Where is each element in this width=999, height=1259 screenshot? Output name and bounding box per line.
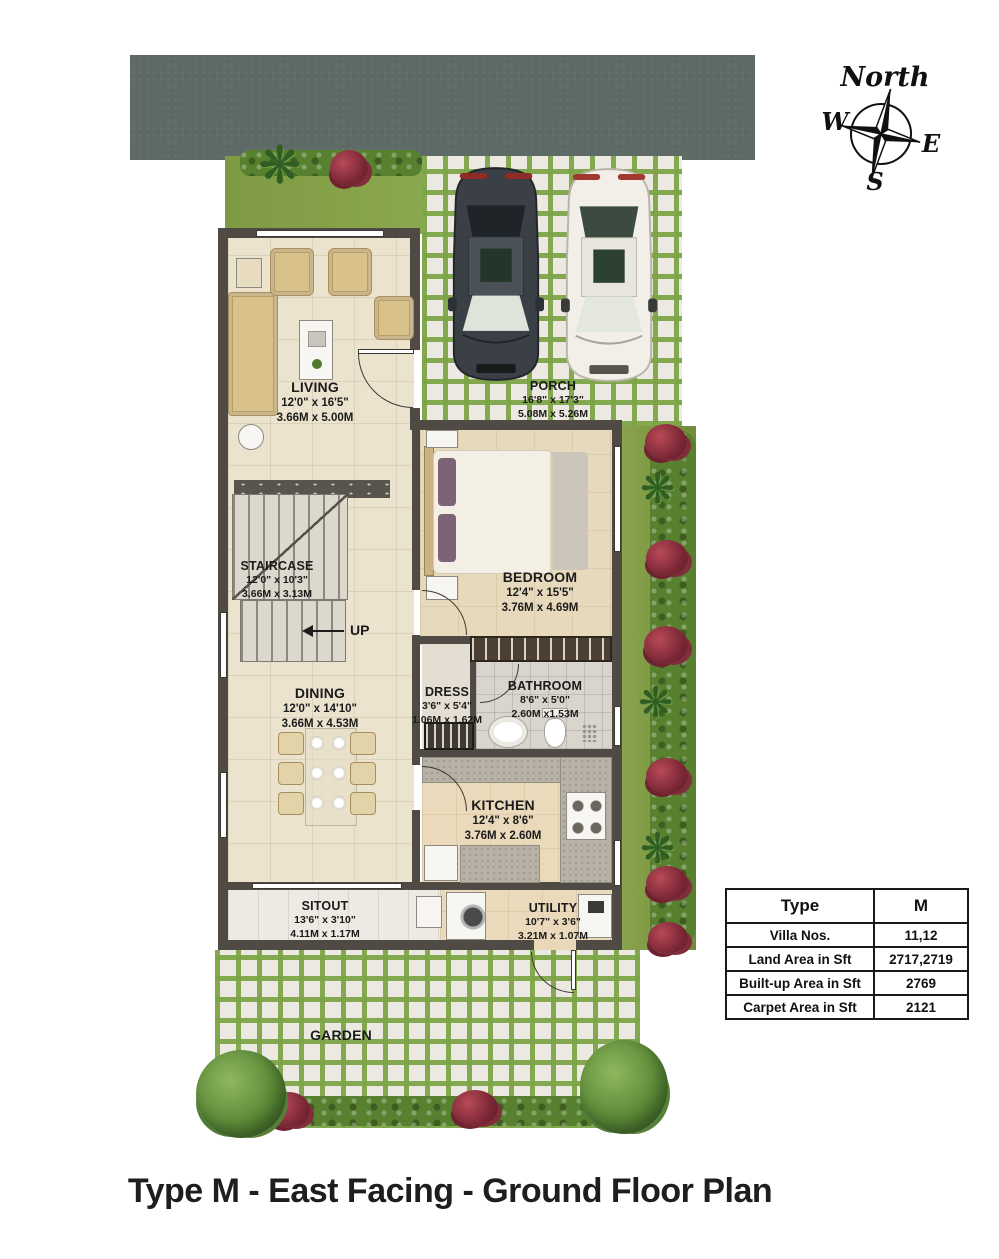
palm-icon: ❋ [638, 682, 673, 724]
door-mat [416, 896, 442, 928]
room-name: UTILITY [490, 900, 616, 916]
wall [412, 430, 420, 590]
room-name: STAIRCASE [222, 558, 332, 574]
spec-row-value: 2121 [874, 995, 968, 1019]
dining-chair [350, 762, 376, 785]
compass-north-label: North [839, 62, 929, 93]
room-name: GARDEN [281, 1026, 401, 1044]
window [252, 883, 402, 889]
up-arrow-icon [312, 630, 344, 632]
room-label-kitchen: KITCHEN 12'4" x 8'6" 3.76M x 2.60M [433, 796, 573, 844]
compass-west-label: W [822, 107, 851, 136]
nightstand [426, 430, 458, 448]
dining-chair [350, 732, 376, 755]
plate-icon [310, 736, 324, 750]
tree-icon [580, 1040, 668, 1134]
plant-icon [312, 359, 322, 369]
compass-east-label: E [921, 129, 941, 158]
room-dim-ft: 12'0" x 16'5" [245, 396, 385, 411]
room-label-bedroom: BEDROOM 12'4" x 15'5" 3.76M x 4.69M [470, 568, 610, 616]
flower-bush-icon [330, 150, 368, 186]
room-dim-m: 3.66M x 5.00M [245, 411, 385, 426]
room-dim-ft: 3'6" x 5'4" [404, 700, 490, 714]
spec-table-row: Built-up Area in Sft 2769 [726, 971, 968, 995]
room-dim-ft: 8'6" x 5'0" [483, 694, 607, 708]
flower-bush-icon [646, 866, 688, 900]
pillow [438, 458, 456, 506]
coffee-table [299, 320, 333, 380]
wall [412, 749, 622, 757]
up-label: UP [350, 622, 369, 638]
flower-bush-icon [648, 922, 688, 954]
room-name: PORCH [483, 378, 623, 394]
room-dim-m: 4.11M x 1.17M [255, 928, 395, 942]
plate-icon [332, 766, 346, 780]
room-label-sitout: SITOUT 13'6" x 3'10" 4.11M x 1.17M [255, 898, 395, 942]
room-dim-ft: 10'7" x 3'6" [490, 916, 616, 930]
window [614, 446, 621, 552]
spec-row-value: 2717,2719 [874, 947, 968, 971]
flower-bush-icon [644, 626, 688, 664]
window [220, 612, 227, 678]
spec-header-value: M [874, 889, 968, 923]
room-dim-m: 2.60M x1.53M [483, 708, 607, 722]
spec-row-value: 11,12 [874, 923, 968, 947]
room-dim-ft: 12'4" x 8'6" [433, 814, 573, 829]
palm-icon: ❋ [640, 468, 675, 510]
room-dim-m: 3.66M x 3.13M [222, 588, 332, 602]
room-dim-ft: 12'0" x 10'3" [222, 574, 332, 588]
room-label-bathroom: BATHROOM 8'6" x 5'0" 2.60M x1.53M [483, 678, 607, 722]
car-dark-icon [447, 164, 545, 384]
dining-chair [350, 792, 376, 815]
spec-row-label: Villa Nos. [726, 923, 874, 947]
spec-table-row: Carpet Area in Sft 2121 [726, 995, 968, 1019]
up-arrow-icon [302, 625, 313, 637]
plate-icon [310, 796, 324, 810]
room-label-dining: DINING 12'0" x 14'10" 3.66M x 4.53M [250, 684, 390, 732]
armchair [270, 248, 314, 296]
room-dim-m: 3.76M x 2.60M [433, 829, 573, 844]
palm-icon: ❋ [258, 140, 302, 192]
palm-icon: ❋ [640, 828, 675, 870]
dining-chair [278, 732, 304, 755]
spec-header-type: Type [726, 889, 874, 923]
pillow [438, 514, 456, 562]
room-name: KITCHEN [433, 796, 573, 814]
floor-plan-canvas: ❋ ❋ ❋ ❋ [0, 0, 999, 1259]
spec-row-value: 2769 [874, 971, 968, 995]
compass-south-label: S [866, 167, 883, 196]
spec-row-label: Carpet Area in Sft [726, 995, 874, 1019]
spec-table-header-row: Type M [726, 889, 968, 923]
room-dim-m: 5.08M x 5.26M [483, 408, 623, 422]
shower-icon [582, 724, 598, 742]
dining-chair [278, 792, 304, 815]
window [614, 706, 621, 746]
compass-rose-icon: North W E S [805, 58, 965, 198]
room-label-staircase: STAIRCASE 12'0" x 10'3" 3.66M x 3.13M [222, 558, 332, 602]
wall [412, 810, 420, 886]
spec-table: Type M Villa Nos. 11,12 Land Area in Sft… [725, 888, 969, 1020]
road [130, 55, 755, 160]
room-name: BEDROOM [470, 568, 610, 586]
room-dim-m: 3.66M x 4.53M [250, 717, 390, 732]
window [614, 840, 621, 886]
room-name: LIVING [245, 378, 385, 396]
room-dim-m: 1.06M x 1.62M [404, 714, 490, 728]
door-leaf [358, 349, 414, 354]
window [256, 230, 384, 237]
round-table [238, 424, 264, 450]
toilet [544, 718, 566, 748]
armchair [374, 296, 414, 340]
car-white-icon [560, 166, 658, 384]
washing-machine-icon [446, 892, 486, 940]
laptop-icon [308, 331, 326, 347]
wardrobe [470, 636, 612, 662]
wall [412, 636, 474, 644]
dining-chair [278, 762, 304, 785]
spec-row-label: Land Area in Sft [726, 947, 874, 971]
room-name: DRESS [404, 684, 490, 700]
room-dim-m: 3.21M x 1.07M [490, 930, 616, 944]
room-dim-ft: 16'8" x 17'3" [483, 394, 623, 408]
room-name: DINING [250, 684, 390, 702]
room-dim-ft: 12'4" x 15'5" [470, 586, 610, 601]
plate-icon [310, 766, 324, 780]
spec-row-label: Built-up Area in Sft [726, 971, 874, 995]
room-label-utility: UTILITY 10'7" x 3'6" 3.21M x 1.07M [490, 900, 616, 944]
spec-table-row: Villa Nos. 11,12 [726, 923, 968, 947]
page-title: Type M - East Facing - Ground Floor Plan [120, 1172, 780, 1211]
room-dim-ft: 12'0" x 14'10" [250, 702, 390, 717]
plate-icon [332, 796, 346, 810]
spec-table-row: Land Area in Sft 2717,2719 [726, 947, 968, 971]
room-label-dress: DRESS 3'6" x 5'4" 1.06M x 1.62M [404, 684, 490, 728]
flower-bush-icon [646, 758, 688, 794]
room-dim-ft: 13'6" x 3'10" [255, 914, 395, 928]
room-name: BATHROOM [483, 678, 607, 694]
window [220, 772, 227, 838]
room-name: SITOUT [255, 898, 395, 914]
tree-icon [196, 1050, 286, 1138]
armchair [328, 248, 372, 296]
room-label-porch: PORCH 16'8" x 17'3" 5.08M x 5.26M [483, 378, 623, 422]
flower-bush-icon [645, 424, 687, 460]
room-label-living: LIVING 12'0" x 16'5" 3.66M x 5.00M [245, 378, 385, 426]
room-dim-m: 3.76M x 4.69M [470, 601, 610, 616]
door-leaf [571, 950, 576, 990]
fridge [424, 845, 458, 881]
flower-bush-icon [452, 1090, 498, 1126]
kitchen-counter [460, 845, 540, 883]
room-label-garden: GARDEN [281, 1026, 401, 1044]
flower-bush-icon [646, 540, 688, 576]
plate-icon [332, 736, 346, 750]
side-table [236, 258, 262, 288]
